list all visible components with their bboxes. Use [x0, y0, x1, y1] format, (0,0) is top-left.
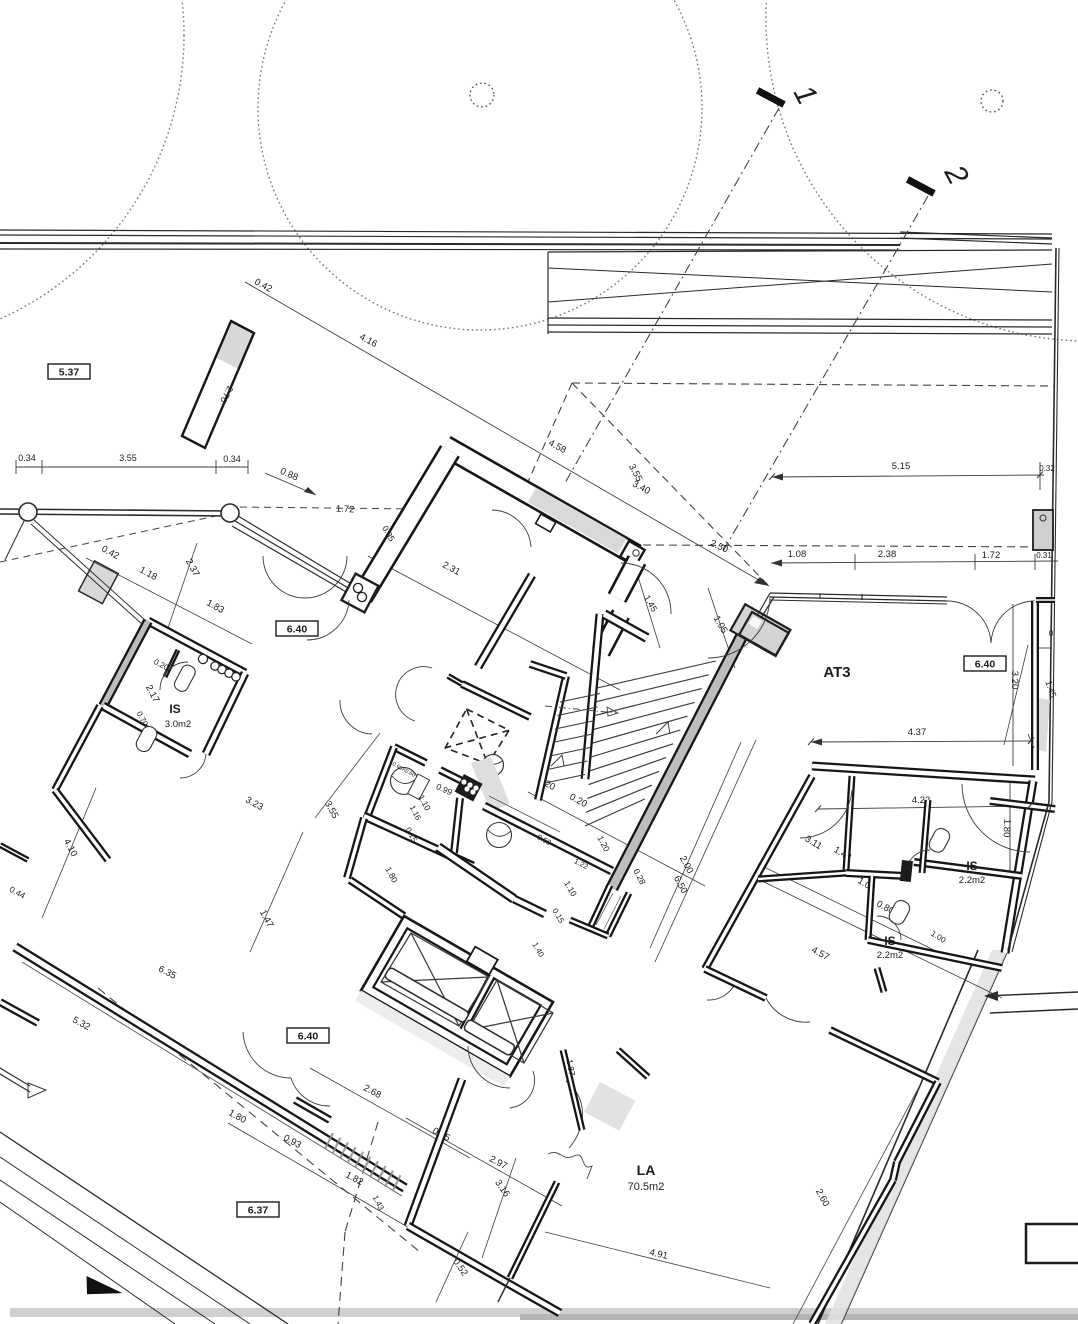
svg-text:4.37: 4.37: [908, 727, 927, 738]
svg-text:IS: IS: [884, 934, 895, 948]
svg-text:IS: IS: [966, 859, 977, 873]
svg-text:0.34: 0.34: [223, 454, 241, 464]
svg-text:70.5m2: 70.5m2: [628, 1181, 665, 1193]
svg-text:5.15: 5.15: [892, 461, 911, 472]
svg-text:1.72: 1.72: [336, 504, 355, 516]
svg-text:1.80: 1.80: [1001, 819, 1013, 838]
svg-text:1.08: 1.08: [788, 549, 807, 560]
svg-text:6.37: 6.37: [248, 1205, 269, 1217]
svg-text:6.40: 6.40: [975, 659, 996, 671]
svg-text:6.40: 6.40: [298, 1031, 319, 1043]
svg-text:6.40: 6.40: [287, 624, 308, 636]
svg-text:IS: IS: [169, 702, 180, 716]
svg-text:0.34: 0.34: [18, 453, 36, 463]
svg-text:2.2m2: 2.2m2: [959, 875, 985, 886]
svg-text:1.72: 1.72: [982, 550, 1001, 561]
svg-text:0: 0: [1049, 629, 1054, 638]
svg-text:0.31: 0.31: [1036, 551, 1052, 560]
svg-text:AT3: AT3: [823, 664, 850, 681]
svg-text:2.2m2: 2.2m2: [877, 950, 903, 961]
svg-text:LA: LA: [637, 1162, 656, 1178]
svg-text:3.0m2: 3.0m2: [165, 719, 191, 730]
svg-text:0.32: 0.32: [1039, 464, 1055, 473]
svg-text:2.38: 2.38: [878, 549, 897, 560]
svg-text:5.37: 5.37: [59, 367, 80, 379]
svg-text:3.55: 3.55: [119, 453, 137, 463]
